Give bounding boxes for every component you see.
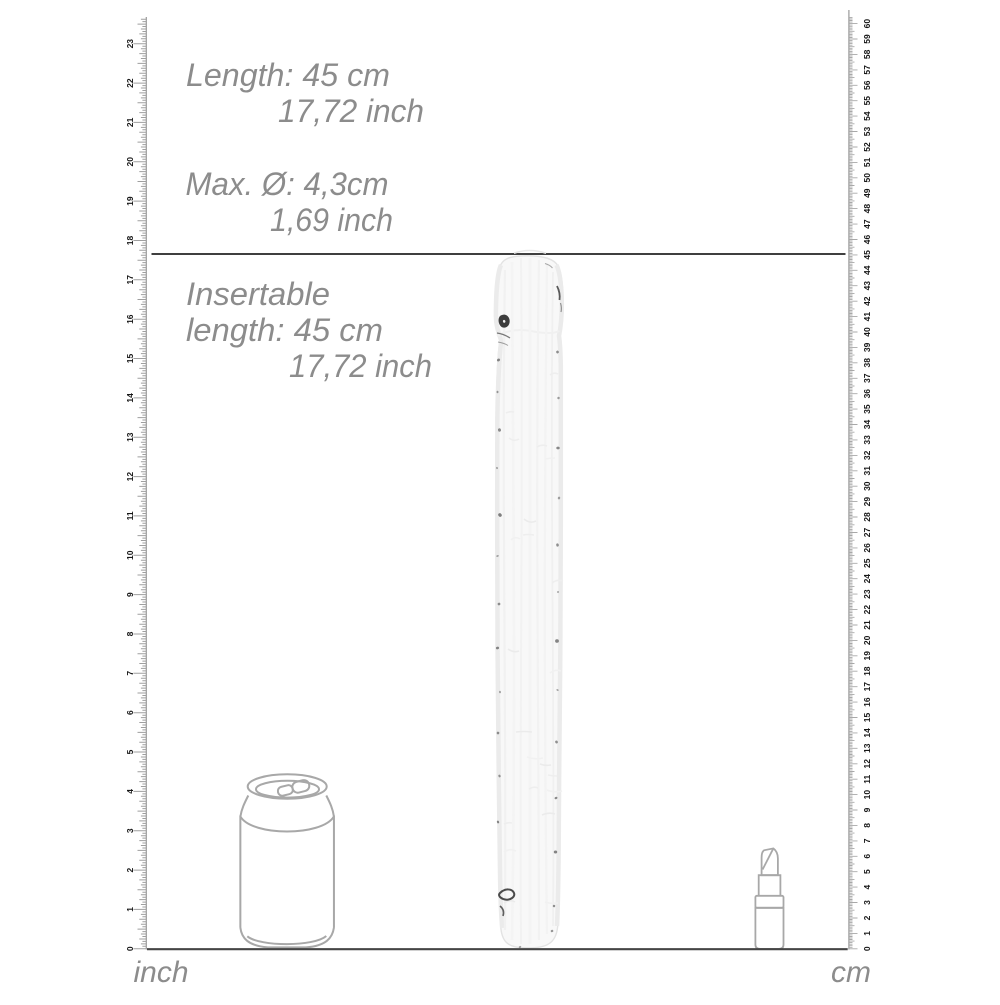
svg-text:21: 21 (862, 620, 872, 630)
svg-text:24: 24 (862, 574, 872, 584)
svg-text:34: 34 (862, 420, 872, 430)
svg-text:35: 35 (862, 404, 872, 414)
svg-text:15: 15 (125, 354, 135, 364)
svg-text:22: 22 (862, 605, 872, 615)
svg-text:11: 11 (862, 774, 872, 783)
svg-text:51: 51 (862, 157, 872, 167)
svg-text:16: 16 (862, 697, 872, 707)
svg-text:12: 12 (862, 759, 872, 769)
svg-text:5: 5 (125, 749, 135, 754)
svg-text:7: 7 (862, 838, 872, 843)
svg-text:31: 31 (862, 466, 872, 476)
svg-text:32: 32 (862, 450, 872, 460)
svg-text:49: 49 (862, 188, 872, 198)
svg-text:9: 9 (125, 592, 135, 597)
svg-text:56: 56 (862, 80, 872, 90)
svg-text:14: 14 (862, 728, 872, 738)
svg-text:3: 3 (862, 900, 872, 905)
svg-text:12: 12 (125, 472, 135, 482)
svg-text:4: 4 (125, 789, 135, 794)
svg-text:39: 39 (862, 342, 872, 352)
svg-text:Insertable: Insertable (186, 276, 330, 312)
svg-text:0: 0 (862, 946, 872, 951)
svg-text:8: 8 (125, 631, 135, 636)
svg-text:11: 11 (125, 511, 135, 520)
svg-text:cm: cm (831, 956, 871, 989)
svg-text:59: 59 (862, 34, 872, 44)
svg-text:2: 2 (862, 915, 872, 920)
svg-text:54: 54 (862, 111, 872, 121)
svg-text:16: 16 (125, 314, 135, 324)
svg-text:17: 17 (862, 682, 872, 692)
svg-text:22: 22 (125, 78, 135, 88)
svg-text:17: 17 (125, 275, 135, 285)
svg-text:17,72 inch: 17,72 inch (289, 348, 432, 384)
svg-text:41: 41 (862, 312, 872, 322)
svg-text:17,72 inch: 17,72 inch (278, 93, 424, 129)
svg-text:1: 1 (862, 931, 872, 936)
svg-text:13: 13 (125, 432, 135, 442)
svg-text:19: 19 (125, 196, 135, 206)
svg-text:1: 1 (125, 907, 135, 912)
svg-text:8: 8 (862, 823, 872, 828)
svg-text:29: 29 (862, 497, 872, 507)
svg-text:3: 3 (125, 828, 135, 833)
svg-text:Max. Ø: 4,3cm: Max. Ø: 4,3cm (186, 166, 389, 202)
svg-text:37: 37 (862, 373, 872, 383)
svg-text:30: 30 (862, 481, 872, 491)
svg-text:20: 20 (862, 635, 872, 645)
svg-text:15: 15 (862, 713, 872, 723)
svg-text:60: 60 (862, 19, 872, 29)
svg-text:14: 14 (125, 393, 135, 403)
svg-text:23: 23 (125, 39, 135, 49)
svg-text:27: 27 (862, 528, 872, 538)
svg-text:53: 53 (862, 127, 872, 137)
svg-text:18: 18 (862, 666, 872, 676)
svg-text:13: 13 (862, 743, 872, 753)
svg-text:28: 28 (862, 512, 872, 522)
svg-text:55: 55 (862, 96, 872, 106)
svg-text:4: 4 (862, 884, 872, 889)
svg-text:44: 44 (862, 265, 872, 275)
svg-text:47: 47 (862, 219, 872, 229)
svg-text:7: 7 (125, 671, 135, 676)
svg-text:6: 6 (125, 710, 135, 715)
svg-text:18: 18 (125, 236, 135, 246)
svg-text:42: 42 (862, 296, 872, 306)
svg-text:1,69 inch: 1,69 inch (270, 202, 393, 238)
svg-text:40: 40 (862, 327, 872, 337)
svg-text:43: 43 (862, 281, 872, 291)
svg-text:36: 36 (862, 389, 872, 399)
svg-text:57: 57 (862, 65, 872, 75)
svg-text:20: 20 (125, 157, 135, 167)
svg-text:inch: inch (134, 956, 189, 989)
svg-text:52: 52 (862, 142, 872, 152)
svg-text:2: 2 (125, 867, 135, 872)
svg-text:21: 21 (125, 117, 135, 127)
svg-text:length: 45 cm: length: 45 cm (186, 312, 383, 348)
svg-text:33: 33 (862, 435, 872, 445)
svg-text:26: 26 (862, 543, 872, 553)
svg-text:50: 50 (862, 173, 872, 183)
svg-text:45: 45 (862, 250, 872, 260)
svg-text:19: 19 (862, 651, 872, 661)
svg-text:23: 23 (862, 589, 872, 599)
svg-text:6: 6 (862, 854, 872, 859)
svg-text:10: 10 (125, 550, 135, 560)
svg-text:38: 38 (862, 358, 872, 368)
svg-text:58: 58 (862, 49, 872, 59)
svg-text:48: 48 (862, 204, 872, 214)
svg-text:5: 5 (862, 869, 872, 874)
svg-text:0: 0 (125, 946, 135, 951)
svg-text:46: 46 (862, 235, 872, 245)
svg-text:9: 9 (862, 807, 872, 812)
svg-text:Length: 45 cm: Length: 45 cm (186, 57, 390, 93)
svg-text:10: 10 (862, 790, 872, 800)
svg-text:25: 25 (862, 558, 872, 568)
